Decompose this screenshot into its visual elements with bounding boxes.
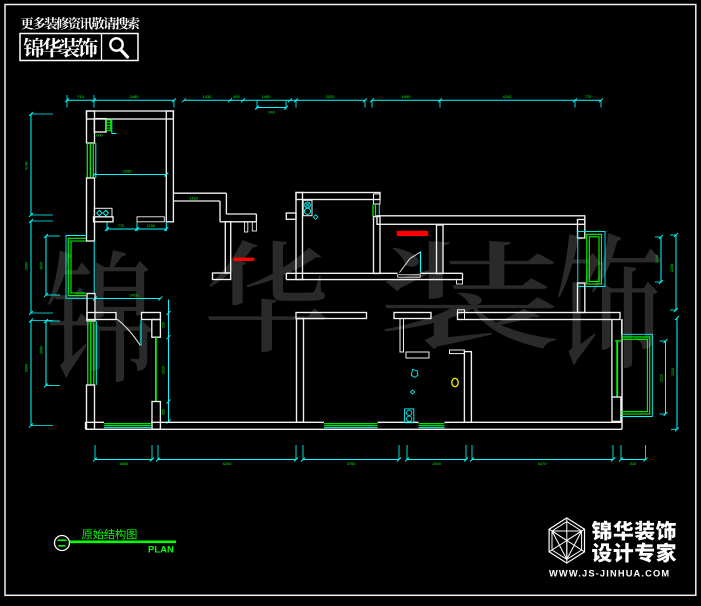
svg-text:2060: 2060 [40, 346, 44, 354]
svg-text:1430: 1430 [203, 94, 213, 99]
svg-text:2480: 2480 [130, 94, 140, 99]
svg-text:2020: 2020 [326, 94, 336, 99]
svg-text:1940: 1940 [432, 461, 442, 466]
svg-text:1450: 1450 [262, 94, 272, 99]
svg-text:3220: 3220 [671, 368, 675, 376]
svg-text:720: 720 [585, 94, 592, 99]
svg-text:3760: 3760 [347, 461, 357, 466]
svg-text:2420: 2420 [130, 292, 140, 297]
svg-text:310: 310 [630, 461, 637, 466]
svg-text:1430: 1430 [189, 196, 197, 200]
svg-text:1840: 1840 [40, 262, 44, 270]
svg-text:2210: 2210 [659, 374, 663, 382]
svg-text:2265: 2265 [123, 168, 133, 173]
svg-text:1860: 1860 [119, 461, 129, 466]
svg-text:240: 240 [268, 110, 275, 115]
svg-text:2060: 2060 [25, 262, 29, 270]
svg-text:4240: 4240 [503, 94, 513, 99]
svg-text:PLAN: PLAN [148, 545, 174, 556]
svg-text:3148: 3148 [25, 162, 29, 170]
svg-text:3360: 3360 [25, 364, 29, 372]
svg-text:2010: 2010 [162, 366, 166, 374]
svg-text:1310: 1310 [655, 255, 659, 263]
svg-text:1150: 1150 [147, 224, 155, 228]
svg-text:710: 710 [77, 94, 84, 99]
svg-text:2258: 2258 [670, 264, 674, 272]
svg-text:600: 600 [96, 134, 102, 138]
svg-text:1840: 1840 [402, 94, 412, 99]
svg-text:450: 450 [233, 94, 240, 99]
svg-text:4470: 4470 [538, 461, 548, 466]
svg-text:650: 650 [162, 409, 166, 415]
svg-text:770: 770 [118, 224, 124, 228]
svg-text:WWW.JS-JINHUA.COM: WWW.JS-JINHUA.COM [549, 569, 670, 579]
svg-text:130: 130 [162, 322, 166, 328]
svg-text:4240: 4240 [223, 461, 233, 466]
